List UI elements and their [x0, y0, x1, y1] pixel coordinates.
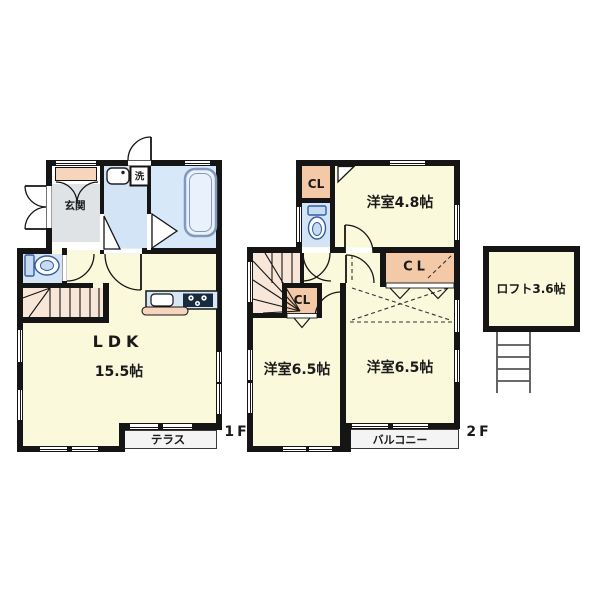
kitchen-icon — [142, 291, 218, 315]
entry-door-arc — [25, 207, 46, 229]
room65-right-label: 洋室6.5帖 — [367, 361, 434, 375]
toilet-door-arc-1f — [67, 254, 94, 281]
washbasin-icon — [107, 168, 129, 184]
bathtub-icon — [185, 169, 216, 236]
floor1-label: 1F — [224, 425, 249, 439]
toilet-icon-2f — [308, 206, 326, 239]
floorplan-canvas: 玄関 洗 LDK 15.5帖 テラス 1F CL 洋室4.8帖 CL CL 洋室… — [0, 0, 600, 600]
genkan-label: 玄関 — [65, 201, 86, 212]
closet-right-label: CL — [403, 261, 429, 274]
ldk-size-label: 15.5帖 — [95, 365, 144, 379]
laundry-label: 洗 — [135, 172, 145, 182]
closet-mid-label: CL — [294, 294, 310, 306]
ladder-icon — [497, 332, 530, 393]
bath-folding-door — [152, 214, 177, 248]
closet-top-label: CL — [308, 178, 324, 190]
backdoor-arc — [128, 137, 151, 160]
room48-corner-door — [338, 167, 354, 183]
floor2-label: 2F — [466, 425, 491, 439]
room65-left-label: 洋室6.5帖 — [264, 363, 331, 377]
terrace-label: テラス — [151, 434, 185, 446]
ldk-door-arc — [105, 254, 141, 290]
room65l-door-arc — [315, 292, 341, 318]
loft-label: ロフト3.6帖 — [496, 283, 565, 295]
entry-door-arc — [25, 186, 46, 207]
room65r-door-arc — [346, 255, 374, 283]
room48-label: 洋室4.8帖 — [367, 196, 434, 210]
toilet-icon-1f — [25, 255, 59, 276]
washroom-door — [104, 216, 120, 249]
ldk-name-label: LDK — [93, 334, 144, 350]
closet-dashed-lines — [350, 255, 452, 322]
stairs-1f-treads — [20, 288, 99, 317]
bifold-door-marks — [287, 283, 454, 328]
balcony-label: バルコニー — [373, 434, 428, 445]
